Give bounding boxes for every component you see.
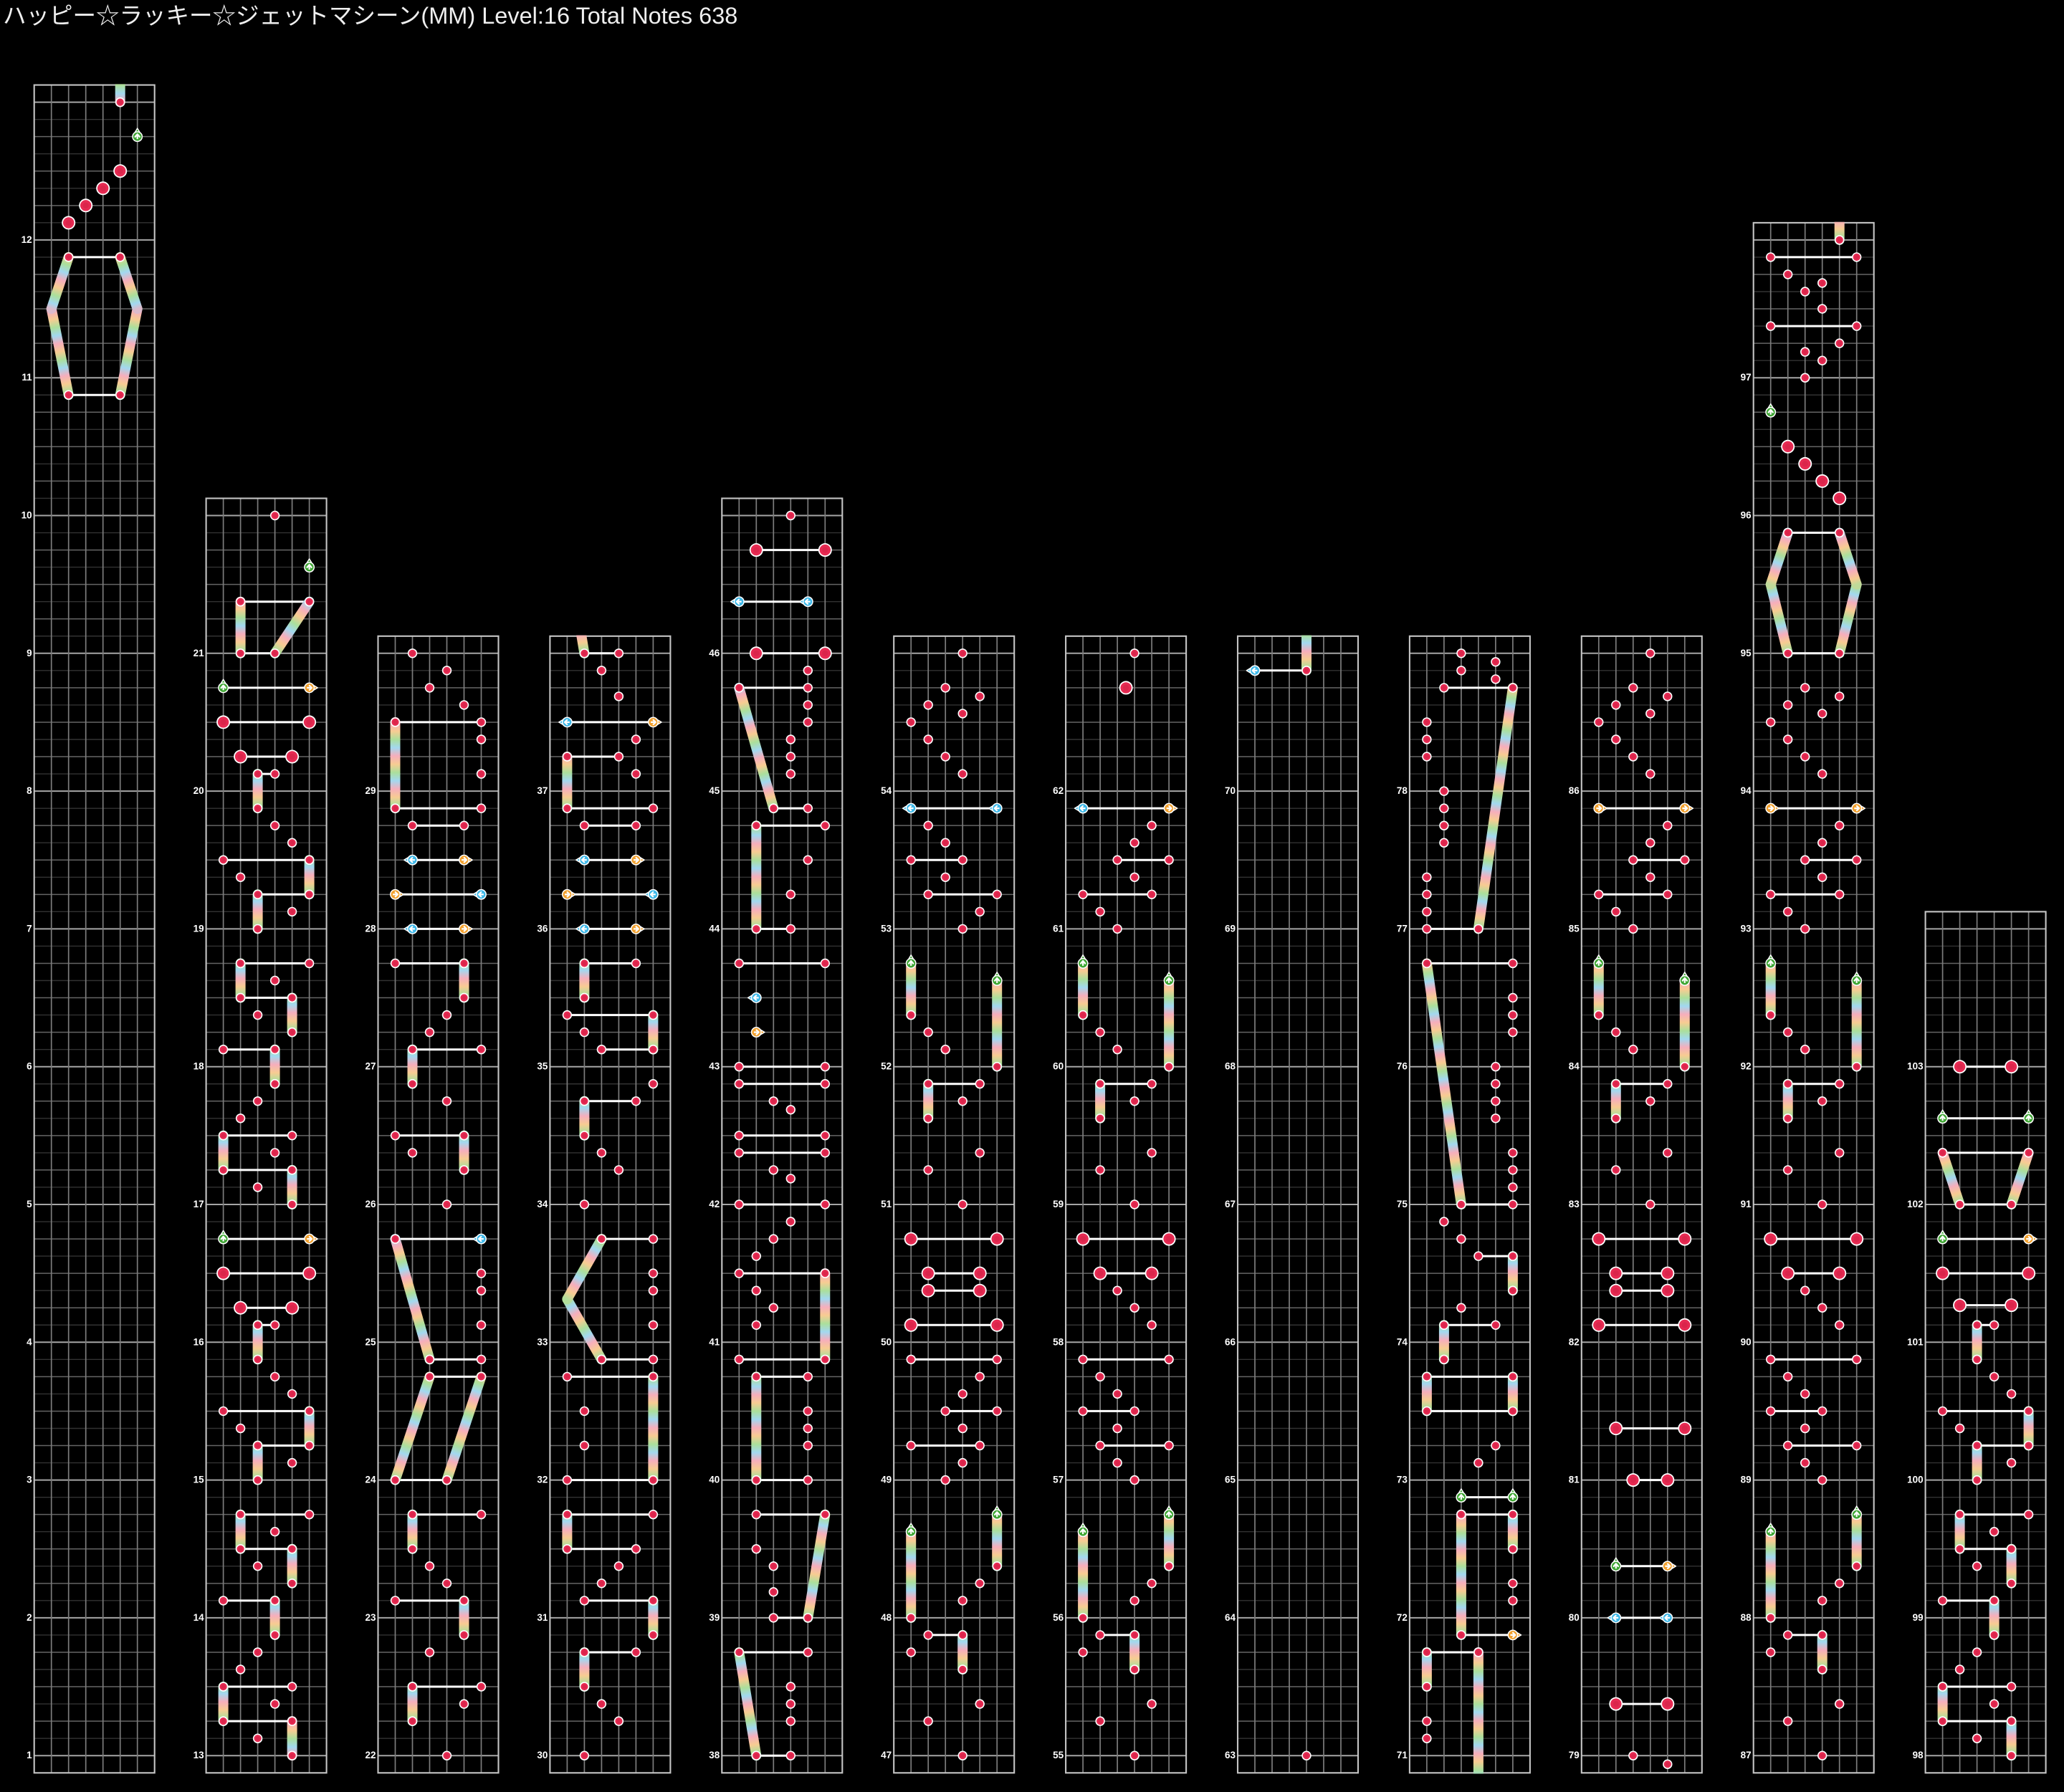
svg-text:48: 48 <box>881 1612 892 1623</box>
svg-text:60: 60 <box>1053 1061 1064 1072</box>
svg-text:17: 17 <box>193 1199 204 1209</box>
svg-text:75: 75 <box>1397 1199 1408 1209</box>
svg-text:50: 50 <box>881 1336 892 1347</box>
svg-text:8: 8 <box>27 785 32 796</box>
svg-text:44: 44 <box>709 923 720 934</box>
svg-text:45: 45 <box>709 785 720 796</box>
svg-text:32: 32 <box>537 1475 548 1485</box>
svg-text:70: 70 <box>1225 785 1236 796</box>
svg-text:ハッピー☆ラッキー☆ジェットマシーン(MM) Level:1: ハッピー☆ラッキー☆ジェットマシーン(MM) Level:16 Total No… <box>3 3 737 29</box>
svg-text:2: 2 <box>27 1612 32 1623</box>
svg-text:27: 27 <box>365 1061 376 1072</box>
svg-text:9: 9 <box>27 648 32 658</box>
svg-text:23: 23 <box>365 1612 376 1623</box>
svg-text:82: 82 <box>1569 1336 1580 1347</box>
svg-text:46: 46 <box>709 648 720 658</box>
svg-text:40: 40 <box>709 1475 720 1485</box>
svg-text:35: 35 <box>537 1061 548 1072</box>
svg-text:62: 62 <box>1053 785 1064 796</box>
svg-text:36: 36 <box>537 923 548 934</box>
svg-text:85: 85 <box>1569 923 1580 934</box>
svg-text:88: 88 <box>1741 1612 1752 1623</box>
svg-text:55: 55 <box>1053 1750 1064 1760</box>
svg-text:77: 77 <box>1397 923 1408 934</box>
svg-text:26: 26 <box>365 1199 376 1209</box>
svg-text:13: 13 <box>193 1750 205 1760</box>
svg-text:42: 42 <box>709 1199 720 1209</box>
svg-text:20: 20 <box>193 785 204 796</box>
svg-text:91: 91 <box>1741 1199 1752 1209</box>
svg-text:15: 15 <box>193 1475 205 1485</box>
svg-text:33: 33 <box>537 1336 548 1347</box>
svg-text:7: 7 <box>27 923 32 934</box>
svg-text:37: 37 <box>537 785 548 796</box>
svg-text:90: 90 <box>1741 1336 1752 1347</box>
svg-text:102: 102 <box>1907 1199 1924 1209</box>
svg-text:97: 97 <box>1741 372 1752 383</box>
svg-text:83: 83 <box>1569 1199 1580 1209</box>
svg-text:49: 49 <box>881 1475 892 1485</box>
svg-text:57: 57 <box>1053 1475 1064 1485</box>
svg-text:14: 14 <box>193 1612 205 1623</box>
svg-text:41: 41 <box>709 1336 720 1347</box>
svg-text:19: 19 <box>193 923 204 934</box>
svg-text:103: 103 <box>1907 1061 1924 1072</box>
svg-text:95: 95 <box>1741 648 1752 658</box>
svg-text:72: 72 <box>1397 1612 1408 1623</box>
svg-text:54: 54 <box>881 785 892 796</box>
svg-text:59: 59 <box>1053 1199 1064 1209</box>
svg-text:61: 61 <box>1053 923 1064 934</box>
svg-text:29: 29 <box>365 785 376 796</box>
svg-text:10: 10 <box>21 510 32 521</box>
svg-text:4: 4 <box>27 1336 32 1347</box>
svg-text:43: 43 <box>709 1061 720 1072</box>
svg-text:16: 16 <box>193 1336 205 1347</box>
svg-text:38: 38 <box>709 1750 720 1760</box>
svg-text:53: 53 <box>881 923 892 934</box>
svg-text:47: 47 <box>881 1750 892 1760</box>
svg-text:69: 69 <box>1225 923 1236 934</box>
svg-text:86: 86 <box>1569 785 1580 796</box>
svg-text:94: 94 <box>1741 785 1752 796</box>
svg-text:5: 5 <box>27 1199 32 1209</box>
svg-text:51: 51 <box>881 1199 892 1209</box>
svg-text:52: 52 <box>881 1061 892 1072</box>
svg-text:24: 24 <box>365 1475 376 1485</box>
svg-text:28: 28 <box>365 923 376 934</box>
svg-text:22: 22 <box>365 1750 376 1760</box>
svg-text:25: 25 <box>365 1336 376 1347</box>
svg-text:99: 99 <box>1913 1612 1924 1623</box>
svg-text:96: 96 <box>1741 510 1752 521</box>
svg-text:12: 12 <box>21 234 32 245</box>
svg-text:11: 11 <box>21 372 32 383</box>
svg-text:84: 84 <box>1569 1061 1580 1072</box>
svg-text:87: 87 <box>1741 1750 1752 1760</box>
svg-text:21: 21 <box>193 648 205 658</box>
svg-text:56: 56 <box>1053 1612 1064 1623</box>
svg-text:76: 76 <box>1397 1061 1408 1072</box>
svg-text:34: 34 <box>537 1199 548 1209</box>
svg-text:100: 100 <box>1907 1475 1924 1485</box>
svg-text:65: 65 <box>1225 1475 1236 1485</box>
svg-text:79: 79 <box>1569 1750 1580 1760</box>
svg-text:78: 78 <box>1397 785 1408 796</box>
svg-text:68: 68 <box>1225 1061 1236 1072</box>
svg-text:73: 73 <box>1397 1475 1408 1485</box>
svg-text:89: 89 <box>1741 1475 1752 1485</box>
svg-text:63: 63 <box>1225 1750 1236 1760</box>
svg-text:92: 92 <box>1741 1061 1752 1072</box>
svg-text:71: 71 <box>1397 1750 1408 1760</box>
svg-text:18: 18 <box>193 1061 205 1072</box>
svg-text:66: 66 <box>1225 1336 1236 1347</box>
svg-text:98: 98 <box>1913 1750 1924 1760</box>
svg-text:101: 101 <box>1907 1336 1924 1347</box>
svg-text:3: 3 <box>27 1475 32 1485</box>
svg-text:31: 31 <box>537 1612 548 1623</box>
svg-text:67: 67 <box>1225 1199 1236 1209</box>
svg-text:64: 64 <box>1225 1612 1236 1623</box>
svg-text:74: 74 <box>1397 1336 1408 1347</box>
svg-text:1: 1 <box>27 1750 32 1760</box>
svg-text:93: 93 <box>1741 923 1752 934</box>
svg-text:80: 80 <box>1569 1612 1580 1623</box>
svg-text:58: 58 <box>1053 1336 1064 1347</box>
svg-text:81: 81 <box>1569 1475 1580 1485</box>
svg-text:39: 39 <box>709 1612 720 1623</box>
svg-text:6: 6 <box>27 1061 32 1072</box>
svg-text:30: 30 <box>537 1750 548 1760</box>
